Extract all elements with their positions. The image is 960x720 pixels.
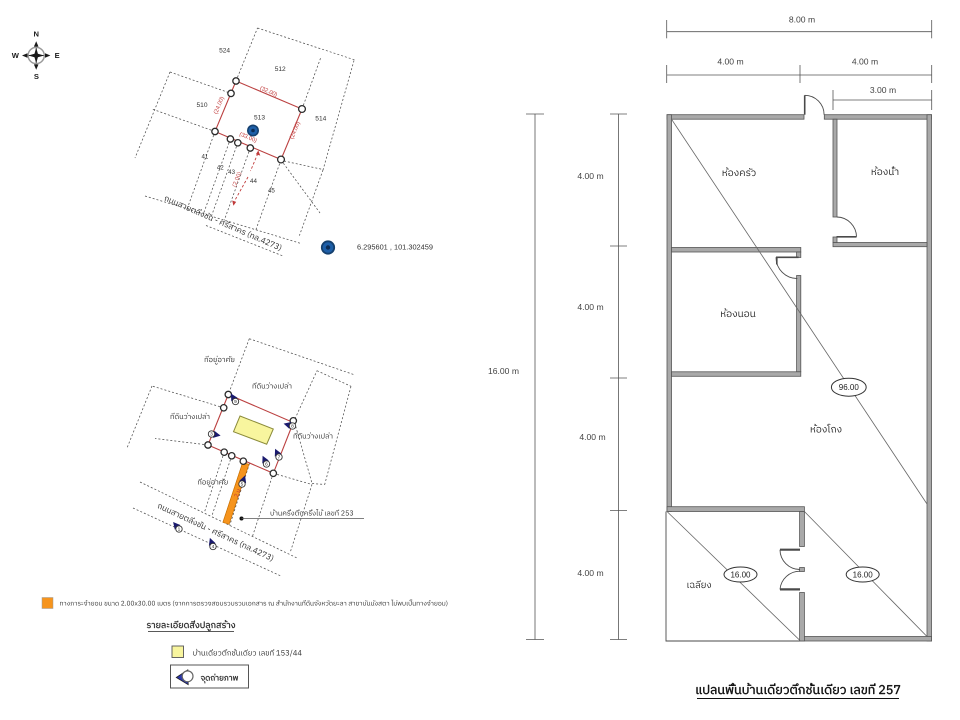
svg-text:4.00 m: 4.00 m — [579, 432, 605, 442]
svg-text:4.00 m: 4.00 m — [577, 302, 603, 312]
svg-text:524: 524 — [219, 48, 230, 55]
svg-text:16.00: 16.00 — [853, 571, 874, 580]
svg-text:1: 1 — [178, 527, 181, 533]
svg-text:513: 513 — [254, 115, 265, 122]
svg-text:3: 3 — [210, 432, 213, 438]
svg-text:43: 43 — [228, 169, 235, 176]
svg-text:9: 9 — [234, 399, 237, 405]
svg-text:8.00 m: 8.00 m — [789, 15, 815, 25]
svg-text:(24.00): (24.00) — [213, 96, 225, 115]
svg-text:E: E — [55, 51, 60, 60]
svg-text:42: 42 — [217, 165, 224, 172]
svg-text:W: W — [12, 51, 20, 60]
svg-text:(24.00): (24.00) — [289, 121, 301, 140]
svg-text:7: 7 — [278, 455, 281, 461]
svg-text:45: 45 — [268, 188, 275, 195]
svg-text:(32.00): (32.00) — [259, 86, 278, 99]
svg-text:4.00 m: 4.00 m — [577, 568, 603, 578]
svg-text:510: 510 — [196, 102, 207, 109]
svg-text:16.00: 16.00 — [730, 571, 751, 580]
svg-text:4.00 m: 4.00 m — [577, 171, 603, 181]
svg-text:6.295601 , 101.302459: 6.295601 , 101.302459 — [357, 243, 433, 252]
svg-text:S: S — [34, 72, 39, 81]
svg-text:N: N — [33, 30, 38, 39]
svg-text:4.00 m: 4.00 m — [852, 57, 878, 67]
svg-text:512: 512 — [275, 66, 286, 73]
svg-text:4: 4 — [212, 544, 215, 550]
svg-text:16.00 m: 16.00 m — [488, 366, 519, 376]
svg-text:96.00: 96.00 — [839, 383, 860, 392]
svg-text:5: 5 — [241, 482, 244, 488]
svg-text:4.00 m: 4.00 m — [717, 57, 743, 67]
svg-text:6: 6 — [265, 462, 268, 468]
svg-text:8: 8 — [291, 424, 294, 430]
svg-text:44: 44 — [250, 178, 257, 185]
svg-text:41: 41 — [201, 154, 208, 161]
svg-text:3.00 m: 3.00 m — [870, 85, 896, 95]
svg-text:514: 514 — [315, 116, 326, 123]
